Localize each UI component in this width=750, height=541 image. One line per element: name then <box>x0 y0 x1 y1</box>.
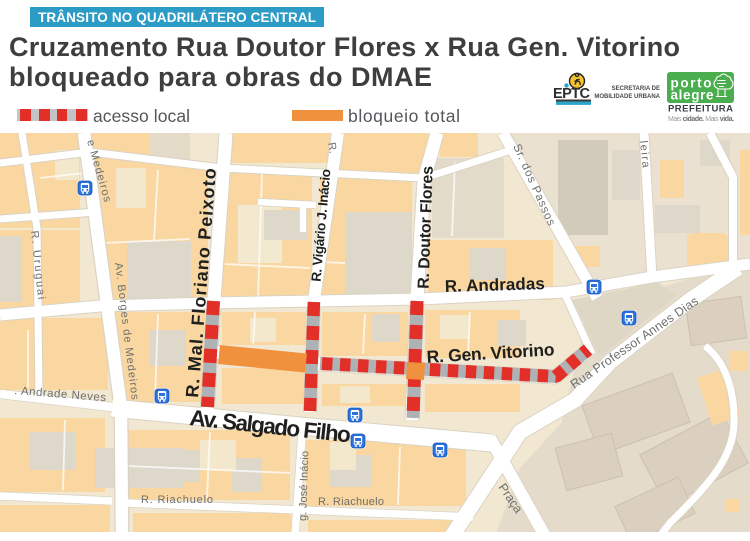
svg-text:g. José Inácio: g. José Inácio <box>297 451 311 521</box>
svg-text:Mais cidade. Mais vida.: Mais cidade. Mais vida. <box>668 116 734 123</box>
svg-text:R.: R. <box>325 141 339 154</box>
svg-text:Cruzamento Rua Doutor Flores x: Cruzamento Rua Doutor Flores x Rua Gen. … <box>9 32 680 62</box>
svg-text:TRÂNSITO NO QUADRILÁTERO CENTR: TRÂNSITO NO QUADRILÁTERO CENTRAL <box>38 10 316 25</box>
svg-text:bloqueio total: bloqueio total <box>348 106 460 126</box>
svg-text:R. Riachuelo: R. Riachuelo <box>318 496 384 508</box>
svg-text:MOBILIDADE URBANA: MOBILIDADE URBANA <box>594 94 660 100</box>
svg-text:acesso local: acesso local <box>93 106 190 126</box>
svg-text:alegre: alegre <box>671 88 714 103</box>
svg-text:bloqueado para obras do DMAE: bloqueado para obras do DMAE <box>9 62 432 92</box>
svg-text:R. Riachuelo: R. Riachuelo <box>141 494 213 506</box>
svg-text:PREFEITURA: PREFEITURA <box>668 104 733 115</box>
svg-text:R. Andradas: R. Andradas <box>445 274 546 296</box>
svg-text:SECRETARIA DE: SECRETARIA DE <box>612 86 660 92</box>
